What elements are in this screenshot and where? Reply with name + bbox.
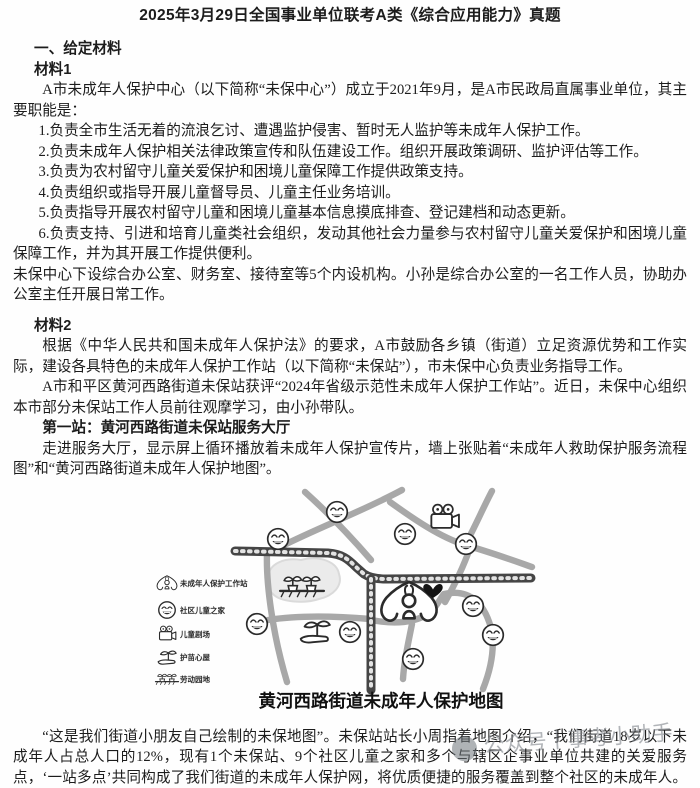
smiley-icon — [159, 601, 175, 617]
duty-item-2: 2.负责未成年人保护相关法律政策宣传和队伍建设工作。组织开展政策调研、监护评估等… — [13, 142, 687, 163]
legend-label-children-home: 社区儿童之家 — [179, 605, 225, 615]
duty-item-5: 5.负责指导开展农村留守儿童和困境儿童基本信息摸底排查、登记建档和动态更新。 — [13, 203, 687, 224]
map-caption: 黄河西路街道未成年人保护地图 — [259, 691, 504, 711]
protection-map-figure: 未成年人保护工作站 社区儿童之家 儿童剧场 护苗心屋 劳动园地 黄河西路街道未成… — [140, 482, 550, 714]
sprout-bed-icon — [156, 674, 179, 684]
map-legend: 未成年人保护工作站 社区儿童之家 儿童剧场 护苗心屋 劳动园地 — [156, 575, 248, 684]
hand-sprout-icon — [158, 651, 176, 664]
hand-sprout-icon — [301, 621, 330, 642]
stop1-heading: 第一站：黄河西路街道未保站服务大厅 — [13, 418, 687, 439]
material1-intro: A市未成年人保护中心（以下简称“未保中心”）成立于2021年9月，是A市民政局直… — [13, 80, 687, 121]
hand-drawn-map: 未成年人保护工作站 社区儿童之家 儿童剧场 护苗心屋 劳动园地 黄河西路街道未成… — [140, 482, 550, 714]
page-title: 2025年3月29日全国事业单位联考A类《综合应用能力》真题 — [13, 5, 687, 27]
smiley-icon — [395, 523, 416, 544]
duty-item-3: 3.负责为农村留守儿童关爱保护和困境儿童保障工作提供政策支持。 — [13, 162, 687, 183]
smiley-icon — [327, 501, 348, 522]
smiley-icon — [463, 595, 484, 616]
material1-heading: 材料1 — [34, 60, 687, 81]
legend-label-workstation: 未成年人保护工作站 — [180, 578, 248, 588]
exam-document-page: 2025年3月29日全国事业单位联考A类《综合应用能力》真题 一、给定材料 材料… — [0, 0, 700, 788]
duty-item-6: 6.负责支持、引进和培育儿童类社会组织，发动其他社会力量参与农村留守儿童关爱保护… — [13, 224, 687, 265]
movie-camera-icon — [160, 626, 176, 640]
material2-paragraph-1: 根据《中华人民共和国未成年人保护法》的要求，A市鼓励各乡镇（街道）立足资源优势和… — [13, 336, 687, 377]
smiley-icon — [268, 528, 289, 549]
movie-camera-icon — [431, 504, 459, 527]
smiley-icon — [483, 624, 504, 645]
smiley-icon — [403, 648, 424, 669]
legend-label-sprout-house: 护苗心屋 — [180, 652, 210, 662]
smiley-icon — [340, 621, 361, 642]
material2-heading: 材料2 — [34, 316, 687, 337]
hands-house-icon — [157, 575, 177, 589]
duty-item-4: 4.负责组织或指导开展儿童督导员、儿童主任业务培训。 — [13, 183, 687, 204]
duty-item-1: 1.负责全市生活无着的流浪乞讨、遭遇监护侵害、暂时无人监护等未成年人保护工作。 — [13, 121, 687, 142]
stop1-paragraph-2: “这是我们街道小朋友自己绘制的未保地图”。未保站站长小周指着地图介绍，“我们街道… — [13, 727, 687, 788]
material1-outro: 未保中心下设综合办公室、财务室、接待室等5个内设机构。小孙是综合办公室的一名工作… — [13, 265, 687, 306]
legend-label-theater: 儿童剧场 — [179, 629, 210, 639]
section-heading: 一、给定材料 — [34, 39, 687, 60]
smiley-icon — [456, 533, 477, 554]
stop1-paragraph-1: 走进服务大厅，显示屏上循环播放着未成年人保护宣传片，墙上张贴着“未成年人救助保护… — [13, 439, 687, 480]
legend-label-labor-garden: 劳动园地 — [180, 674, 210, 684]
smiley-icon — [247, 613, 268, 634]
material2-paragraph-2: A市和平区黄河西路街道未保站获评“2024年省级示范性未成年人保护工作站”。近日… — [13, 377, 687, 418]
